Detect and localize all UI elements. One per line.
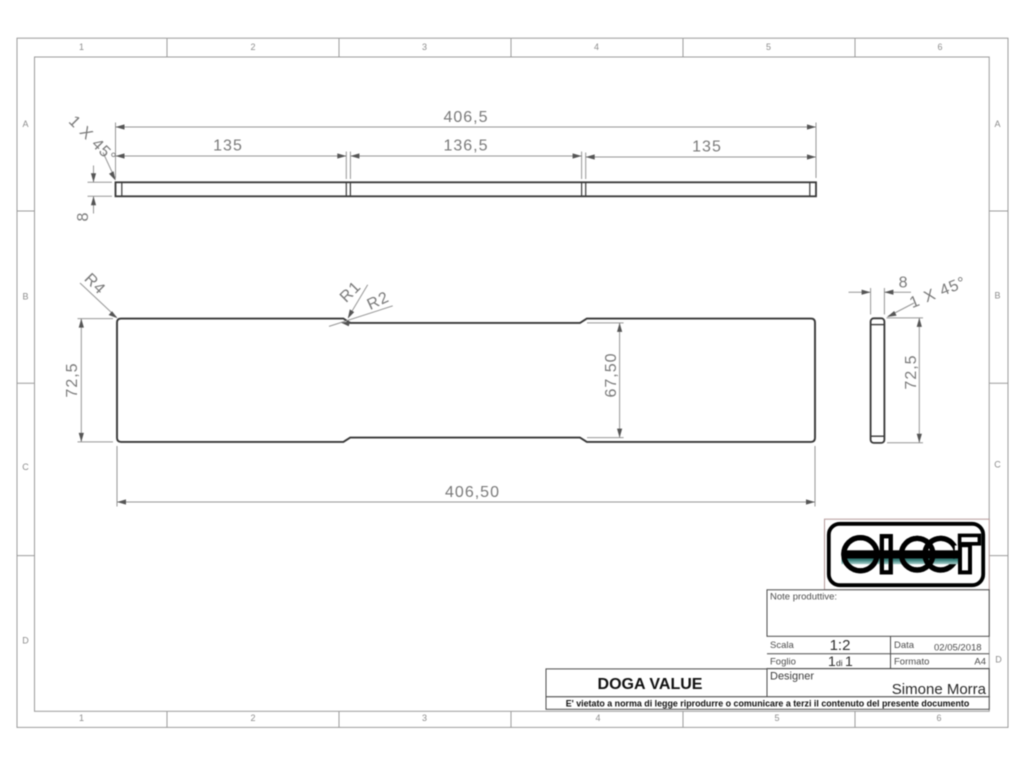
svg-text:Foglio: Foglio [770, 657, 796, 668]
svg-text:D: D [995, 655, 1002, 665]
svg-text:6: 6 [936, 713, 941, 723]
svg-text:406,5: 406,5 [443, 109, 488, 126]
svg-text:136,5: 136,5 [443, 138, 488, 155]
svg-text:3: 3 [422, 42, 427, 52]
svg-text:1: 1 [828, 653, 836, 669]
svg-text:Note produttive:: Note produttive: [770, 592, 837, 603]
svg-text:DOGA VALUE: DOGA VALUE [598, 676, 703, 693]
svg-text:Simone Morra: Simone Morra [892, 681, 987, 698]
svg-text:2: 2 [250, 713, 255, 723]
svg-text:D: D [22, 636, 29, 646]
svg-text:B: B [22, 292, 28, 302]
svg-text:02/05/2018: 02/05/2018 [934, 643, 982, 654]
svg-text:8: 8 [899, 275, 909, 292]
svg-text:6: 6 [937, 42, 942, 52]
svg-text:1: 1 [79, 713, 84, 723]
svg-text:3: 3 [422, 713, 427, 723]
svg-text:72,5: 72,5 [903, 354, 920, 389]
svg-text:135: 135 [692, 139, 722, 156]
svg-text:135: 135 [213, 138, 243, 155]
svg-text:di: di [836, 658, 843, 668]
svg-text:A4: A4 [974, 657, 986, 668]
svg-text:4: 4 [594, 42, 599, 52]
svg-text:A: A [994, 119, 1000, 129]
svg-text:C: C [22, 462, 29, 472]
svg-text:C: C [994, 460, 1001, 470]
svg-text:1: 1 [79, 42, 84, 52]
svg-text:5: 5 [774, 713, 779, 723]
svg-text:Data: Data [894, 640, 915, 651]
svg-text:A: A [22, 119, 28, 129]
svg-text:67,50: 67,50 [603, 352, 620, 397]
svg-text:2: 2 [250, 42, 255, 52]
svg-text:406,50: 406,50 [445, 484, 500, 501]
svg-text:72,5: 72,5 [64, 362, 81, 397]
svg-text:Scala: Scala [770, 640, 794, 651]
svg-text:4: 4 [595, 713, 600, 723]
svg-text:8: 8 [75, 212, 92, 222]
svg-text:5: 5 [766, 42, 771, 52]
svg-text:Designer: Designer [770, 671, 814, 683]
svg-text:B: B [994, 291, 1000, 301]
svg-text:1:2: 1:2 [830, 637, 851, 654]
svg-text:1: 1 [845, 653, 853, 669]
svg-text:Formato: Formato [894, 657, 929, 668]
svg-text:E' vietato a norma di legge ri: E' vietato a norma di legge riprodurre o… [566, 698, 970, 708]
